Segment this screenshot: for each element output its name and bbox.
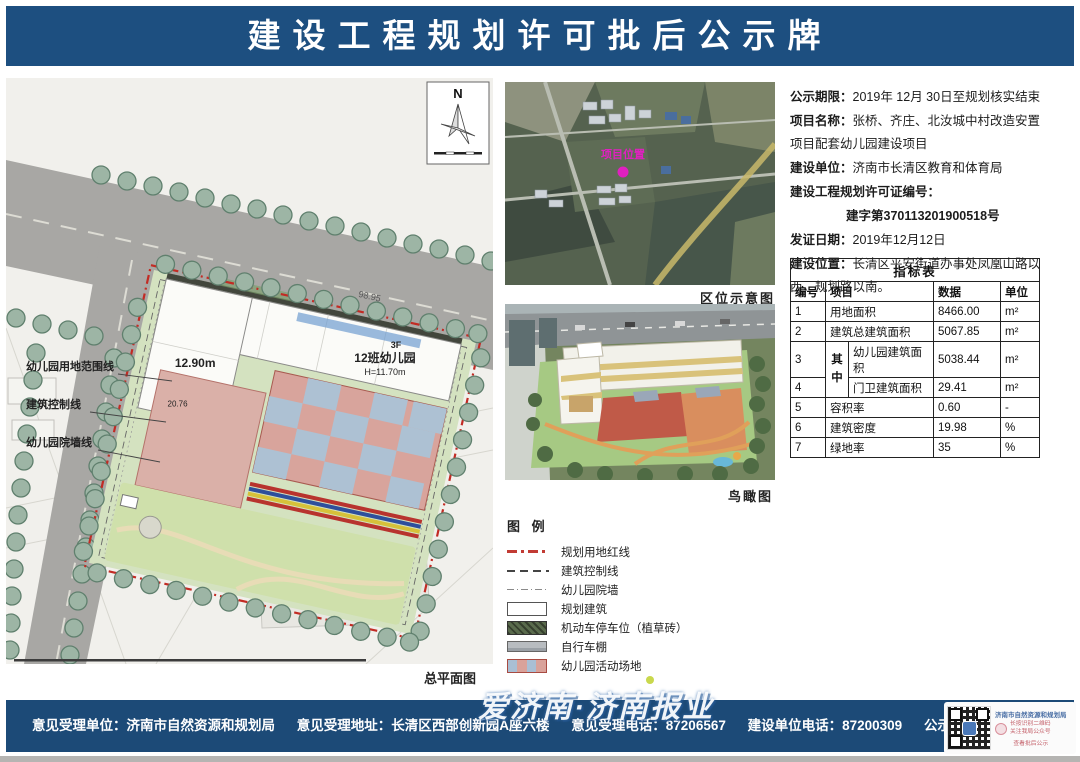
table-row: 2 建筑总建筑面积 5067.85 m² [791, 322, 1040, 342]
qr-org-name: 济南市自然资源和规划局 [995, 709, 1067, 719]
watermark-dot [646, 676, 654, 684]
cell-unit: m² [1001, 342, 1040, 378]
cell-unit: - [1001, 398, 1040, 418]
cell-item: 建筑总建筑面积 [826, 322, 934, 342]
qr-code [947, 706, 991, 750]
cell-unit: % [1001, 418, 1040, 438]
col-header-unit: 单位 [1001, 282, 1040, 302]
red-line-swatch [507, 550, 551, 553]
marker-label: 项目位置 [601, 147, 645, 161]
bird-view [505, 304, 775, 480]
wall-line-swatch [507, 589, 551, 591]
info-line-owner: 建设单位：济南市长清区教育和体育局 [790, 157, 1048, 180]
info-line-project: 项目名称：张桥、齐庄、北汝城中村改造安置项目配套幼儿园建设项目 [790, 110, 1048, 156]
qr-note: 长按识别二维码 关注我局公众号 [995, 721, 1067, 737]
cell-unit: m² [1001, 378, 1040, 398]
info-label: 发证日期： [790, 233, 853, 247]
legend-label: 机动车停车位（植草砖） [561, 620, 688, 636]
table-title: 指标表 [791, 259, 1040, 282]
info-value: 2019年 12月 30日至规划核实结束 [853, 90, 1041, 104]
legend-label: 规划用地红线 [561, 544, 630, 560]
north-label: N [453, 86, 462, 101]
legend-item: 规划建筑 [507, 599, 779, 618]
cell-value: 19.98 [934, 418, 1001, 438]
legend-label: 自行车棚 [561, 639, 607, 655]
legend-item: 幼儿园活动场地 [507, 656, 779, 675]
seal-icon [995, 723, 1007, 735]
control-line-swatch [507, 570, 551, 572]
building-height-left-label: 12.90m [175, 356, 216, 370]
legend-item: 规划用地红线 [507, 542, 779, 561]
table-row: 1 用地面积 8466.00 m² [791, 302, 1040, 322]
media-watermark: 爱济南·济南报业 [478, 682, 714, 726]
legend-item: 自行车棚 [507, 637, 779, 656]
cell-value: 8466.00 [934, 302, 1001, 322]
legend: 图 例 规划用地红线 建筑控制线 幼儿园院墙 规划建筑 机动车停车位（植草砖） … [507, 516, 779, 675]
info-value: 济南市长清区教育和体育局 [853, 161, 1003, 175]
cell-no: 5 [791, 398, 826, 418]
footer-seg: 意见受理单位：济南市自然资源和规划局 [32, 718, 275, 733]
table-row: 5 容积率 0.60 - [791, 398, 1040, 418]
legend-item: 机动车停车位（植草砖） [507, 618, 779, 637]
bv-sand-area [569, 396, 593, 412]
cell-item: 容积率 [826, 398, 934, 418]
legend-title: 图 例 [507, 516, 779, 535]
table-row: 6 建筑密度 19.98 % [791, 418, 1040, 438]
info-line-permit-title: 建设工程规划许可证编号： [790, 181, 1048, 204]
site-plan: 98.95 12.90m 20.76 3F 12班幼儿园 H=11.70m 幼儿… [6, 78, 493, 664]
cell-no: 4 [791, 378, 826, 398]
header-banner: 建设工程规划许可批后公示牌 [6, 6, 1074, 66]
plan-base-line [14, 659, 366, 662]
cell-no: 6 [791, 418, 826, 438]
cell-unit: m² [1001, 322, 1040, 342]
cell-value: 29.41 [934, 378, 1001, 398]
cell-item: 门卫建筑面积 [849, 378, 934, 398]
info-label: 公示期限： [790, 90, 853, 104]
info-value: 建字第370113201900518号 [846, 209, 1000, 223]
qr-card: 济南市自然资源和规划局 长按识别二维码 关注我局公众号 查看批后公示 [944, 702, 1076, 754]
info-value: 2019年12月12日 [853, 233, 946, 247]
info-line-period: 公示期限：2019年 12月 30日至规划核实结束 [790, 86, 1048, 109]
site-marker-dot [618, 167, 629, 178]
qr-text-block: 济南市自然资源和规划局 长按识别二维码 关注我局公众号 查看批后公示 [995, 709, 1067, 748]
callout-land-boundary: 幼儿园用地范围线 [26, 359, 114, 373]
scale-bar [434, 152, 482, 155]
cell-no: 2 [791, 322, 826, 342]
building-swatch [507, 602, 551, 616]
cell-value: 5067.85 [934, 322, 1001, 342]
info-line-issue-date: 发证日期：2019年12月12日 [790, 229, 1048, 252]
page-title: 建设工程规划许可批后公示牌 [6, 6, 1074, 66]
building-name-label: 12班幼儿园 [354, 350, 415, 365]
info-line-permit-number: 建字第370113201900518号 [790, 205, 1048, 228]
bv-pool [713, 457, 733, 467]
col-header-no: 编号 [791, 282, 826, 302]
legend-item: 建筑控制线 [507, 561, 779, 580]
cell-no: 1 [791, 302, 826, 322]
table-row: 7 绿地率 35 % [791, 438, 1040, 458]
legend-label: 幼儿园院墙 [561, 582, 619, 598]
activity-ground-swatch [507, 659, 551, 673]
col-header-item: 项目 [826, 282, 934, 302]
bike-shed-swatch [507, 641, 551, 652]
parking-swatch [507, 621, 551, 635]
cell-item: 幼儿园建筑面积 [849, 342, 934, 378]
cell-item: 用地面积 [826, 302, 934, 322]
qr-note2: 关注我局公众号 [1010, 729, 1051, 735]
col-header-value: 数据 [934, 282, 1001, 302]
indicator-table: 指标表 编号 项目 数据 单位 1 用地面积 8466.00 m² 2 建筑总建… [790, 258, 1040, 458]
cell-no: 3 [791, 342, 826, 378]
callout-control-line: 建筑控制线 [26, 397, 81, 411]
location-map: 项目位置 [505, 82, 775, 285]
cell-unit: m² [1001, 302, 1040, 322]
building-height-label: H=11.70m [364, 367, 405, 377]
dimension-left-label: 20.76 [167, 399, 188, 408]
qr-center-logo [962, 721, 977, 736]
cell-value: 0.60 [934, 398, 1001, 418]
notice-board: 建设工程规划许可批后公示牌 [0, 0, 1080, 762]
info-label: 项目名称： [790, 114, 853, 128]
cell-value: 35 [934, 438, 1001, 458]
bottom-edge-strip [0, 756, 1080, 762]
north-arrow-box: N [427, 82, 489, 164]
cell-no: 7 [791, 438, 826, 458]
legend-label: 幼儿园活动场地 [561, 658, 642, 674]
info-label: 建设单位： [790, 161, 853, 175]
bv-play-dot [733, 452, 741, 460]
legend-label: 规划建筑 [561, 601, 607, 617]
legend-item: 幼儿园院墙 [507, 580, 779, 599]
site-plan-caption: 总平面图 [6, 668, 492, 687]
building-floors-label: 3F [391, 340, 402, 350]
bird-view-caption: 鸟瞰图 [505, 486, 773, 505]
table-header-row: 编号 项目 数据 单位 [791, 282, 1040, 302]
legend-label: 建筑控制线 [561, 563, 619, 579]
qr-note1: 长按识别二维码 [1010, 721, 1051, 727]
footer-seg: 建设单位电话：87200309 [748, 718, 903, 733]
table-row: 3 其中 幼儿园建筑面积 5038.44 m² [791, 342, 1040, 378]
info-label: 建设工程规划许可证编号： [790, 185, 940, 199]
cell-merge: 其中 [826, 342, 849, 398]
cell-item: 建筑密度 [826, 418, 934, 438]
qr-note3: 查看批后公示 [995, 738, 1067, 747]
cell-item: 绿地率 [826, 438, 934, 458]
cell-value: 5038.44 [934, 342, 1001, 378]
cell-unit: % [1001, 438, 1040, 458]
callout-wall-line: 幼儿园院墙线 [26, 435, 92, 449]
